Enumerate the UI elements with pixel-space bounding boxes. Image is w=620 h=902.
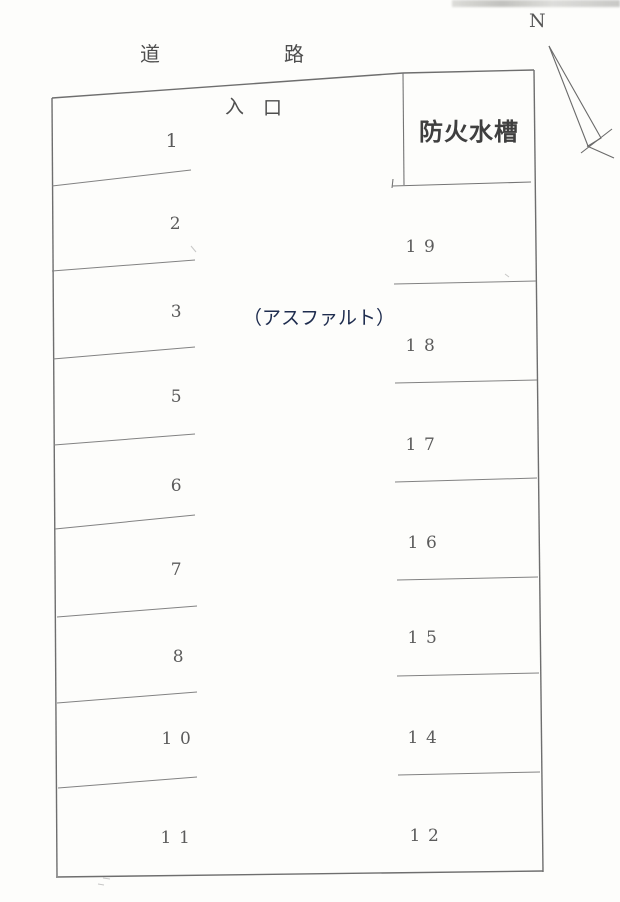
road-label-char2: 路 bbox=[284, 44, 304, 64]
stall-number-15: 15 bbox=[408, 630, 445, 647]
stall-number-3: 3 bbox=[171, 304, 189, 321]
stall-number-10: 10 bbox=[162, 731, 199, 748]
stall-number-1: 1 bbox=[166, 132, 187, 151]
stall-number-5: 5 bbox=[171, 389, 189, 406]
stall-number-11: 11 bbox=[161, 830, 198, 847]
north-arrow-icon bbox=[549, 46, 614, 158]
stall-number-14: 14 bbox=[408, 730, 445, 747]
stall-number-17: 17 bbox=[406, 437, 443, 454]
entrance-label-char2: 口 bbox=[263, 99, 282, 118]
surface-note: （アスファルト） bbox=[243, 306, 395, 331]
road-label-char1: 道 bbox=[140, 44, 160, 64]
parking-layout-scan: 道 路 入 口 防火水槽 （アスファルト） N 1 2 3 5 6 7 8 10… bbox=[0, 0, 620, 902]
stall-number-7: 7 bbox=[171, 562, 189, 579]
north-label: N bbox=[529, 12, 546, 31]
entrance-label-char1: 入 bbox=[225, 98, 244, 117]
stall-number-12: 12 bbox=[410, 828, 447, 845]
stall-number-8: 8 bbox=[173, 649, 191, 666]
stall-number-19: 19 bbox=[406, 239, 443, 256]
stall-number-16: 16 bbox=[408, 535, 445, 552]
fire-water-tank-label: 防火水槽 bbox=[419, 112, 519, 147]
fire-water-tank-box: 防火水槽 bbox=[404, 73, 534, 185]
scan-specks bbox=[98, 246, 509, 885]
stall-number-6: 6 bbox=[171, 478, 189, 495]
stall-number-2: 2 bbox=[170, 216, 188, 233]
stall-number-18: 18 bbox=[406, 338, 443, 355]
